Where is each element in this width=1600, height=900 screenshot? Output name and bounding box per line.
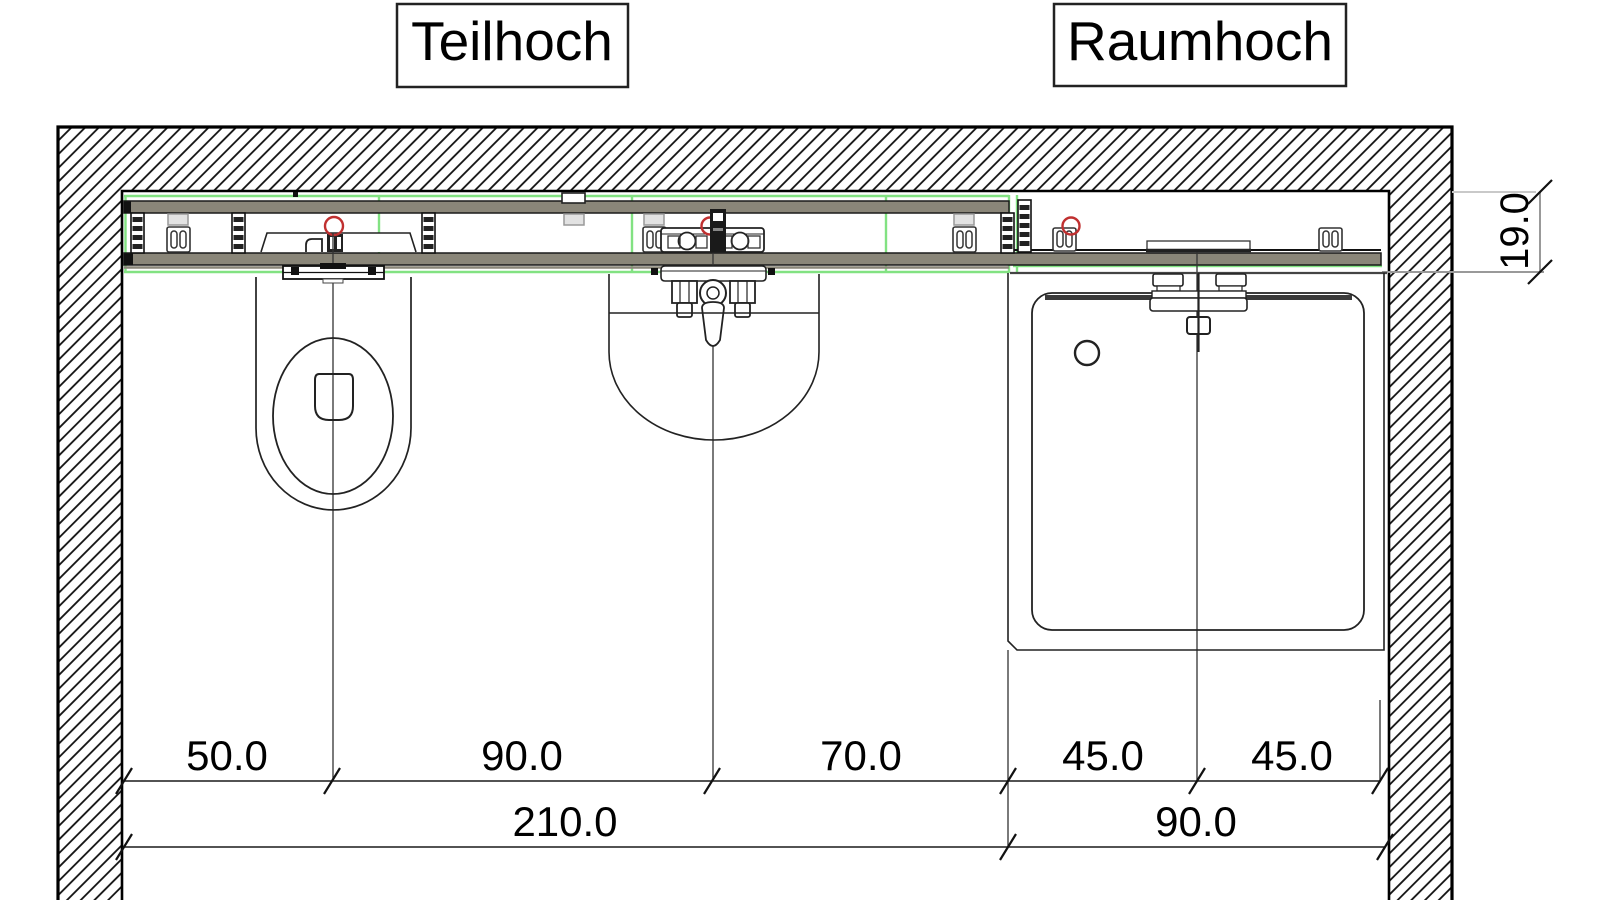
svg-text:45.0: 45.0 [1251, 732, 1333, 779]
svg-text:90.0: 90.0 [481, 732, 563, 779]
svg-text:19.0: 19.0 [1493, 192, 1537, 270]
svg-text:70.0: 70.0 [820, 732, 902, 779]
svg-text:90.0: 90.0 [1155, 798, 1237, 845]
svg-text:Teilhoch: Teilhoch [411, 10, 613, 72]
svg-text:210.0: 210.0 [512, 798, 617, 845]
svg-text:Raumhoch: Raumhoch [1067, 10, 1333, 72]
svg-text:50.0: 50.0 [186, 732, 268, 779]
svg-text:45.0: 45.0 [1062, 732, 1144, 779]
